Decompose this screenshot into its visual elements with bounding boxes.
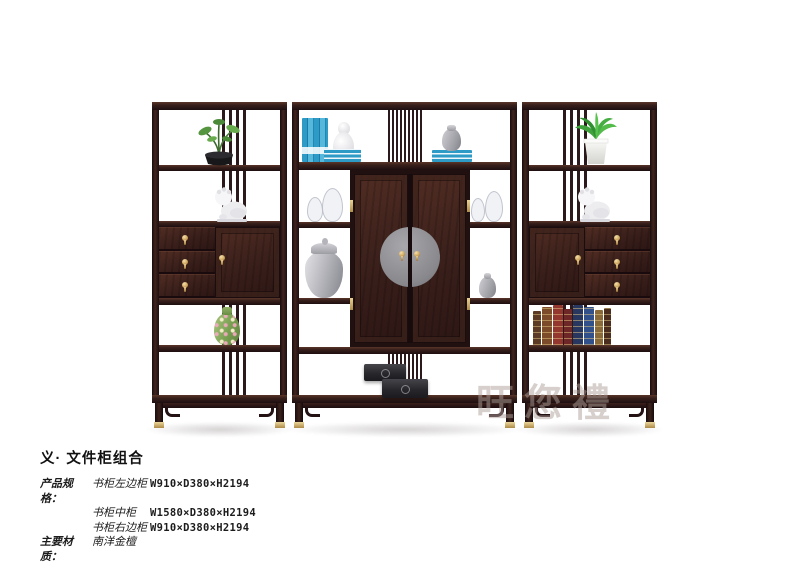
book-spine bbox=[564, 309, 572, 345]
brass-knob bbox=[182, 235, 188, 241]
book-spine bbox=[542, 307, 551, 345]
catalog-page: 旺您禮 义· 文件柜组合 产品规格： 书柜左边柜 W910×D380×H2194… bbox=[0, 0, 800, 566]
brass-knob bbox=[219, 255, 225, 261]
right-post bbox=[510, 110, 517, 403]
green-porcelain-vase bbox=[214, 313, 240, 345]
spec-size: W910×D380×H2194 bbox=[150, 521, 249, 536]
book-spine bbox=[584, 307, 594, 345]
brass-hinge bbox=[467, 298, 470, 310]
book-spine bbox=[604, 308, 611, 345]
bottom-shelf bbox=[152, 395, 287, 403]
shelf bbox=[529, 298, 650, 305]
brass-knob bbox=[182, 282, 188, 288]
lattice-slats bbox=[388, 110, 424, 162]
blue-books-stack bbox=[324, 149, 361, 162]
brass-knob bbox=[399, 251, 405, 257]
brass-hinge bbox=[350, 200, 353, 212]
shelf bbox=[159, 345, 280, 352]
leg bbox=[295, 403, 303, 428]
material-label: 主要材质： bbox=[40, 535, 92, 564]
book-spine bbox=[533, 311, 541, 345]
apron-bracket bbox=[259, 408, 274, 417]
apron-bracket bbox=[165, 408, 180, 417]
brass-knob bbox=[182, 259, 188, 265]
shelf bbox=[299, 162, 510, 170]
watermark: 旺您禮 bbox=[476, 372, 676, 427]
side-shelf bbox=[299, 298, 350, 304]
spec-row: 书柜右边柜 W910×D380×H2194 bbox=[40, 521, 256, 536]
blue-books-stack bbox=[432, 150, 472, 162]
product-info: 义· 文件柜组合 产品规格： 书柜左边柜 W910×D380×H2194 书柜中… bbox=[40, 447, 256, 565]
side-shelf bbox=[468, 298, 510, 304]
spec-name: 书柜左边柜 bbox=[92, 477, 150, 492]
product-title: 义· 文件柜组合 bbox=[40, 447, 256, 468]
right-post bbox=[650, 110, 657, 403]
bonsai-plant bbox=[194, 109, 244, 166]
glass-vase bbox=[485, 191, 503, 222]
gray-jar bbox=[442, 129, 461, 151]
shelf bbox=[159, 298, 280, 305]
spec-name: 书柜右边柜 bbox=[92, 521, 150, 536]
glass-vase bbox=[307, 197, 323, 222]
side-shelf bbox=[468, 222, 510, 228]
book-spine bbox=[595, 310, 603, 345]
brass-knob bbox=[614, 235, 620, 241]
shelf bbox=[529, 165, 650, 171]
book-spine bbox=[573, 305, 582, 345]
glass-vase bbox=[322, 188, 343, 222]
gray-jar bbox=[479, 277, 496, 298]
spec-size: W1580×D380×H2194 bbox=[150, 506, 256, 521]
material-row: 主要材质： 南洋金檀 bbox=[40, 535, 256, 564]
shelf bbox=[299, 347, 510, 354]
top-board bbox=[292, 102, 517, 110]
spec-size: W910×D380×H2194 bbox=[150, 477, 249, 492]
gift-box bbox=[382, 379, 428, 398]
spec-list: 产品规格： 书柜左边柜 W910×D380×H2194 书柜中柜 W1580×D… bbox=[40, 477, 256, 565]
leg bbox=[155, 403, 163, 428]
center-door-cabinet bbox=[350, 170, 470, 347]
spec-row: 产品规格： 书柜左边柜 W910×D380×H2194 bbox=[40, 477, 256, 506]
leg bbox=[276, 403, 284, 428]
brass-hinge bbox=[467, 200, 470, 212]
shelf bbox=[529, 345, 650, 352]
side-shelf bbox=[299, 222, 350, 228]
brass-knob bbox=[614, 282, 620, 288]
brass-hinge bbox=[350, 298, 353, 310]
left-cabinet-unit bbox=[152, 102, 287, 428]
left-post bbox=[152, 110, 159, 403]
right-post bbox=[280, 110, 287, 403]
material-value: 南洋金檀 bbox=[92, 535, 136, 550]
spec-label: 产品规格： bbox=[40, 477, 92, 506]
brass-knob bbox=[575, 255, 581, 261]
antique-books-row bbox=[533, 305, 611, 345]
spec-row: 书柜中柜 W1580×D380×H2194 bbox=[40, 506, 256, 521]
spec-name: 书柜中柜 bbox=[92, 506, 150, 521]
book-spine bbox=[553, 305, 563, 345]
apron-bracket bbox=[305, 408, 320, 417]
potted-plant bbox=[573, 106, 619, 165]
brass-knob bbox=[614, 259, 620, 265]
cabinet-door bbox=[215, 227, 280, 298]
left-post bbox=[522, 110, 529, 403]
lion-figurine bbox=[577, 184, 612, 222]
temple-jar bbox=[305, 251, 343, 298]
lion-figurine bbox=[214, 184, 249, 222]
door-gap bbox=[408, 174, 412, 343]
brass-knob bbox=[414, 251, 420, 257]
glass-vase bbox=[471, 198, 485, 222]
left-post bbox=[292, 110, 299, 403]
floor-shadow bbox=[146, 422, 293, 437]
